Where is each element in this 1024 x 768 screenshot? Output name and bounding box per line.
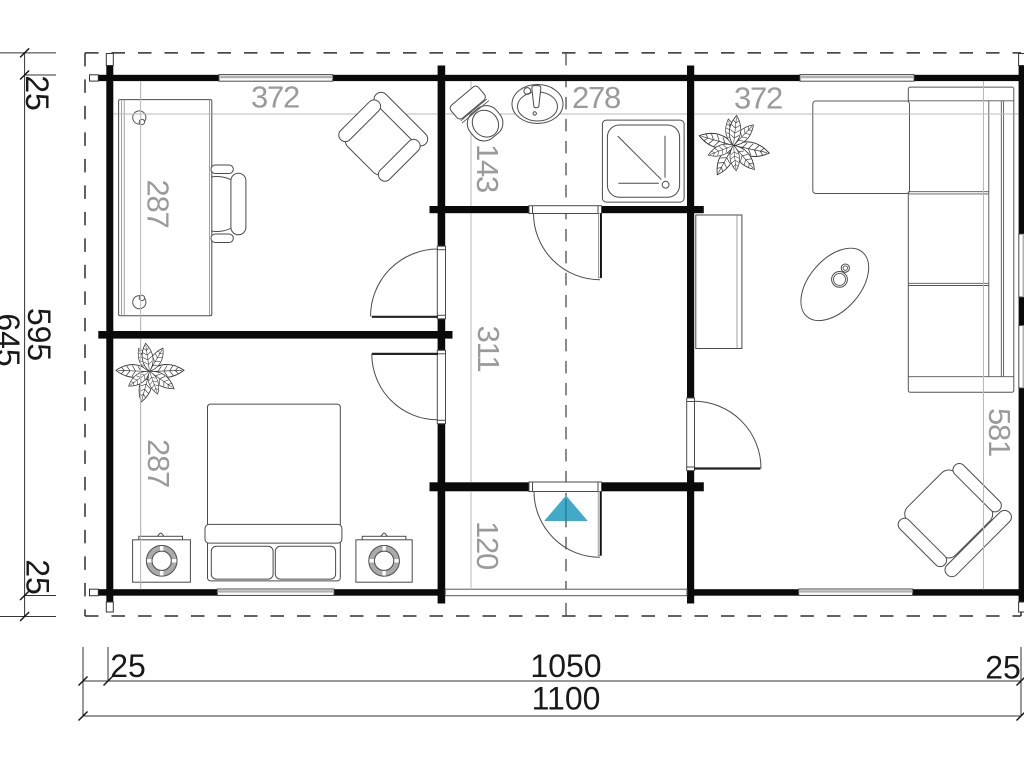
svg-text:1050: 1050: [530, 648, 601, 684]
svg-text:372: 372: [251, 80, 299, 115]
svg-text:25: 25: [110, 648, 146, 684]
svg-text:311: 311: [471, 326, 506, 372]
svg-text:120: 120: [470, 521, 505, 570]
svg-text:25: 25: [985, 650, 1021, 686]
svg-text:287: 287: [141, 439, 176, 487]
svg-text:25: 25: [19, 75, 55, 111]
svg-text:25: 25: [20, 559, 56, 595]
svg-text:287: 287: [141, 179, 176, 227]
svg-text:278: 278: [572, 80, 620, 115]
svg-text:645: 645: [0, 313, 26, 366]
svg-text:143: 143: [470, 144, 505, 192]
svg-text:1100: 1100: [532, 681, 601, 717]
svg-text:372: 372: [734, 81, 782, 116]
svg-text:581: 581: [982, 408, 1017, 456]
